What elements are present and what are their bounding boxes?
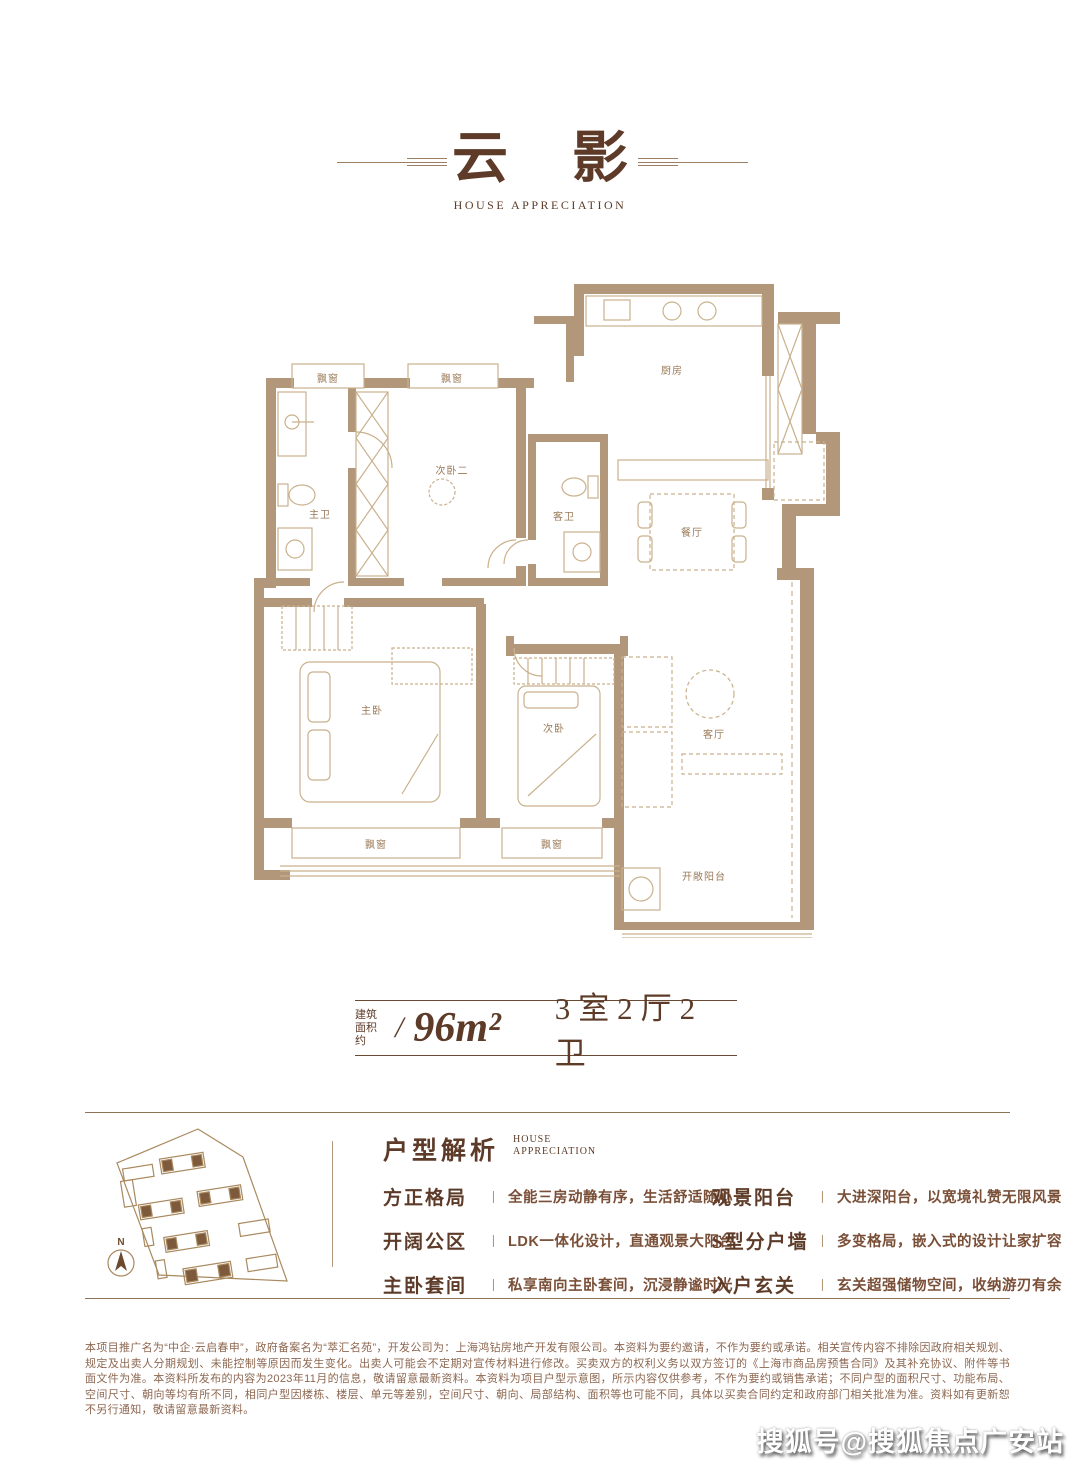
analysis-heading-en: HOUSE APPRECIATION [513,1134,596,1158]
title-ornament-left [337,158,447,167]
section-divider [332,1141,333,1267]
feature-row: 观景阳台 丨 大进深阳台，以宽境礼赞无限风景 [712,1183,1007,1210]
feature-title: 开阔公区 [383,1227,485,1254]
page-title-char-2: 影 [572,131,628,187]
room-label-kitchen: 厨房 [661,364,683,377]
feature-title: 入户玄关 [712,1271,814,1298]
area-prefix: 建筑 面积约 [355,1009,387,1048]
page-subtitle: HOUSE APPRECIATION [0,198,1080,213]
room-label-master-bath: 主卫 [309,509,331,521]
analysis-heading-en-top: HOUSE [513,1134,596,1146]
room-label-bay-window-2: 飘窗 [441,372,463,385]
page-title: 云 影 [452,131,628,187]
title-ornament-right [638,158,748,167]
feature-divider: 丨 [816,1275,829,1294]
feature-desc: 全能三房动静有序，生活舒适随心 [508,1186,733,1207]
area-value: 96m² [413,1004,500,1052]
feature-title: 观景阳台 [712,1183,814,1210]
feature-title: 方正格局 [383,1183,485,1210]
feature-row: 入户玄关 丨 玄关超强储物空间，收纳游刃有余 [712,1271,1007,1298]
room-label-bay-window-1: 飘窗 [317,372,339,385]
floor-plan-walls [254,284,840,930]
room-label-bedroom-2: 次卧二 [436,464,469,477]
analysis-section: 户型解析 HOUSE APPRECIATION 方正格局 丨 全能三房动静有序，… [383,1131,1003,1298]
feature-row: 主卧套间 丨 私享南向主卧套间，沉浸静谧时光 [383,1271,678,1298]
lower-band: N 户型解析 HOUSE APPRECIATION 方正格局 丨 全能三房动静有… [85,1112,1010,1299]
site-plan: N [95,1123,335,1287]
area-prefix-bottom: 面积约 [355,1022,387,1048]
feature-desc: 私享南向主卧套间，沉浸静谧时光 [508,1274,733,1295]
feature-divider: 丨 [816,1231,829,1250]
watermark: 搜狐号@搜狐焦点广安站 [757,1420,1064,1459]
feature-divider: 丨 [487,1231,500,1250]
feature-row: 开阔公区 丨 LDK一体化设计，直通观景大阳台 [383,1227,678,1254]
room-label-living: 客厅 [703,728,725,741]
room-label-bedroom: 次卧 [543,722,565,735]
feature-title: 主卧套间 [383,1271,485,1298]
analysis-heading-en-bottom: APPRECIATION [513,1146,596,1158]
page-title-char-1: 云 [452,131,508,187]
features-right: 观景阳台 丨 大进深阳台，以宽境礼赞无限风景 S型分户墙 丨 多变格局，嵌入式的… [712,1183,1007,1298]
feature-desc: 多变格局，嵌入式的设计让家扩容 [837,1230,1062,1251]
room-label-open-balcony: 开敞阳台 [682,870,726,883]
room-label-dining: 餐厅 [681,526,703,539]
title-block: 云 影 HOUSE APPRECIATION [0,128,1080,218]
feature-desc: 玄关超强储物空间，收纳游刃有余 [837,1274,1062,1295]
feature-desc: 大进深阳台，以宽境礼赞无限风景 [837,1186,1062,1207]
north-label: N [117,1237,124,1248]
analysis-heading: 户型解析 [383,1131,499,1167]
room-label-bay-window-4: 飘窗 [541,838,563,851]
feature-divider: 丨 [816,1187,829,1206]
area-separator: / [395,1011,403,1045]
feature-row: S型分户墙 丨 多变格局，嵌入式的设计让家扩容 [712,1227,1007,1254]
feature-divider: 丨 [487,1187,500,1206]
room-label-guest-bath: 客卫 [553,510,575,523]
room-label-master-bedroom: 主卧 [361,704,383,717]
feature-divider: 丨 [487,1275,500,1294]
feature-desc: LDK一体化设计，直通观景大阳台 [508,1230,734,1251]
feature-title: S型分户墙 [712,1227,814,1254]
page: 云 影 HOUSE APPRECIATION [0,0,1080,1465]
disclaimer-text: 本项目推广名为“中企·云启春申”，政府备案名为“萃汇名苑”，开发公司为：上海鸿钻… [85,1341,1010,1419]
feature-row: 方正格局 丨 全能三房动静有序，生活舒适随心 [383,1183,678,1210]
features-left: 方正格局 丨 全能三房动静有序，生活舒适随心 开阔公区 丨 LDK一体化设计，直… [383,1183,678,1298]
area-prefix-top: 建筑 [355,1009,387,1022]
room-label-bay-window-3: 飘窗 [365,838,387,851]
room-count: 3室2厅2卫 [555,983,737,1073]
floor-plan: 飘窗 飘窗 主卫 次卧二 客卫 厨房 餐厅 主卧 次卧 客厅 飘窗 飘窗 开敞阳… [252,282,852,938]
area-spec: 建筑 面积约 / 96m² 3室2厅2卫 [355,1000,737,1056]
